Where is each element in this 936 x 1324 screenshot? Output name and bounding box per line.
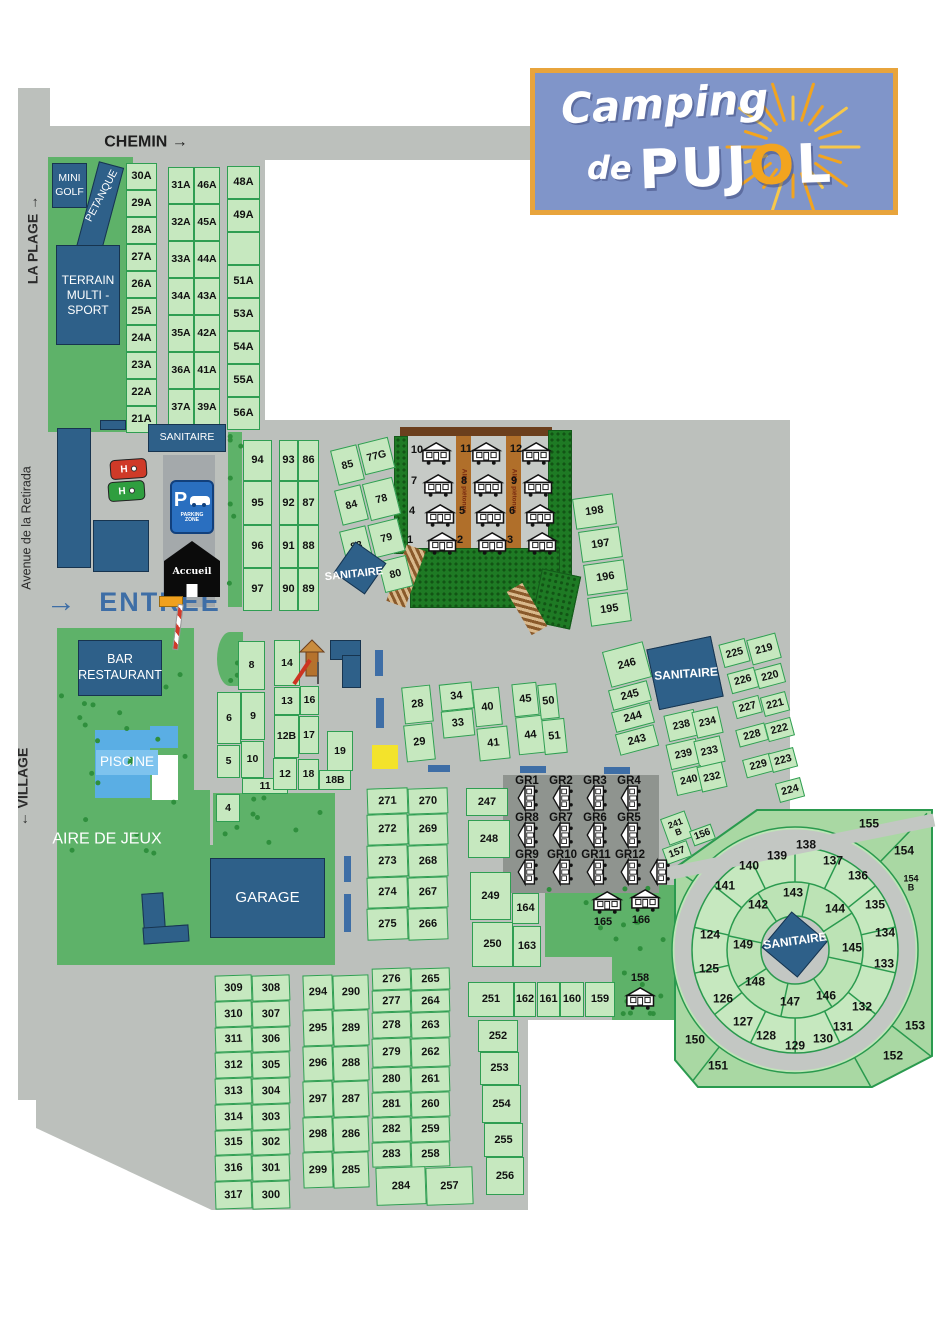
logo-prefix-word: de xyxy=(587,149,632,187)
plot-161: 161 xyxy=(537,982,560,1017)
map-label-144: 144 xyxy=(825,903,845,916)
map-label-138: 138 xyxy=(796,839,816,852)
plot-302: 302 xyxy=(252,1129,291,1155)
piscine-pool-2 xyxy=(150,726,178,748)
parking-sign: P PARKING ZONE xyxy=(170,480,214,534)
plot-10: 10 xyxy=(241,741,264,778)
map-label-gr3: GR3 xyxy=(583,775,607,787)
plot-163: 163 xyxy=(513,926,541,967)
aire-de-jeux-label: AIRE DE JEUX xyxy=(52,832,161,849)
car-icon xyxy=(190,496,210,505)
sanitaire-north-building: SANITAIRE xyxy=(148,424,226,452)
map-label-gr5: GR5 xyxy=(617,812,641,824)
map-label-3: 3 xyxy=(507,535,513,547)
map-label-152: 152 xyxy=(883,1050,903,1063)
map-label-130: 130 xyxy=(813,1033,833,1046)
plot-27A: 27A xyxy=(126,244,157,271)
accueil-house-icon: Accueil xyxy=(164,541,220,597)
road-label-la-plage: LA PLAGE → xyxy=(26,196,41,284)
plot-277: 277 xyxy=(372,989,412,1012)
map-label-1: 1 xyxy=(407,535,413,547)
plot-274: 274 xyxy=(366,876,408,908)
plot-285: 285 xyxy=(332,1151,369,1188)
map-label-133: 133 xyxy=(874,958,894,971)
plot-257: 257 xyxy=(425,1166,473,1206)
map-label-146: 146 xyxy=(816,990,836,1003)
plot-278: 278 xyxy=(372,1011,412,1038)
plot-14: 14 xyxy=(274,640,300,686)
map-label-137: 137 xyxy=(823,855,843,868)
plot-312: 312 xyxy=(215,1051,253,1078)
plot-51A: 51A xyxy=(227,265,260,298)
map-label-155: 155 xyxy=(859,818,879,831)
map-label-147: 147 xyxy=(780,996,800,1009)
building-west-3 xyxy=(100,420,126,430)
plot-28A: 28A xyxy=(126,217,157,244)
plot-250: 250 xyxy=(472,922,513,967)
plot-43A: 43A xyxy=(194,278,220,315)
terrain-multi-sport-building: TERRAIN MULTI - SPORT xyxy=(56,245,120,345)
map-label-149: 149 xyxy=(733,939,753,952)
map-label-134: 134 xyxy=(875,927,895,940)
plot-249: 249 xyxy=(470,872,511,920)
building-west-2 xyxy=(93,520,149,572)
map-label-gr10: GR10 xyxy=(547,849,577,861)
plot-287: 287 xyxy=(332,1080,369,1117)
map-label-11: 11 xyxy=(460,444,472,456)
plot-276: 276 xyxy=(372,967,412,990)
plot-41: 41 xyxy=(476,725,510,761)
plot-93: 93 xyxy=(279,440,298,481)
camping-logo: Camping de PUJOL xyxy=(530,68,898,215)
plot-6: 6 xyxy=(217,692,241,744)
road-dash xyxy=(344,894,351,932)
plot-88: 88 xyxy=(298,525,319,568)
plot-39A: 39A xyxy=(194,389,220,426)
road-dash xyxy=(428,765,450,772)
plot-95: 95 xyxy=(243,481,272,525)
plot-unlabeled xyxy=(227,232,260,265)
plot-26A: 26A xyxy=(126,271,157,298)
building-l-2 xyxy=(142,924,189,944)
map-label-gr6: GR6 xyxy=(583,812,607,824)
plot-268: 268 xyxy=(407,844,448,877)
map-label-gr12: GR12 xyxy=(615,849,645,861)
plot-37A: 37A xyxy=(168,389,194,426)
red-truck-icon: H xyxy=(109,458,147,481)
plot-310: 310 xyxy=(215,1000,253,1027)
plot-314: 314 xyxy=(215,1103,253,1130)
map-label-136: 136 xyxy=(848,870,868,883)
plot-309: 309 xyxy=(215,974,253,1001)
accueil-door xyxy=(187,584,198,597)
plot-308: 308 xyxy=(252,974,291,1001)
plot-264: 264 xyxy=(411,989,451,1012)
plot-87: 87 xyxy=(298,481,319,525)
plot-303: 303 xyxy=(252,1103,291,1130)
map-label-gr7: GR7 xyxy=(549,812,573,824)
plot-86: 86 xyxy=(298,440,319,481)
road-label-avenue-de-la-retirada: Avenue de la Retirada xyxy=(20,466,33,589)
plot-46A: 46A xyxy=(194,167,220,204)
plot-248: 248 xyxy=(468,820,510,858)
map-label-gr1: GR1 xyxy=(515,775,539,787)
plot-19: 19 xyxy=(327,731,353,771)
parking-zone-label: PARKING ZONE xyxy=(181,513,204,523)
plot-306: 306 xyxy=(252,1026,291,1052)
map-label-139: 139 xyxy=(767,850,787,863)
plot-160: 160 xyxy=(560,982,584,1017)
plot-263: 263 xyxy=(411,1011,451,1038)
plot-283: 283 xyxy=(372,1141,412,1167)
green-truck-icon: H xyxy=(107,480,145,503)
plot-195: 195 xyxy=(587,592,632,626)
map-label-2: 2 xyxy=(457,535,463,547)
plot-313: 313 xyxy=(215,1077,253,1104)
map-label-gr9: GR9 xyxy=(515,849,539,861)
gr-zone xyxy=(503,775,659,893)
plot-159: 159 xyxy=(585,982,615,1017)
plot-49A: 49A xyxy=(227,199,260,232)
parking-p-label: P xyxy=(174,491,187,509)
plot-53A: 53A xyxy=(227,298,260,331)
plot-288: 288 xyxy=(332,1045,369,1081)
map-label-153: 153 xyxy=(905,1020,925,1033)
plot-164: 164 xyxy=(512,893,539,924)
map-label-125: 125 xyxy=(699,963,719,976)
plot-18B: 18B xyxy=(319,770,351,790)
map-label-124: 124 xyxy=(700,929,720,942)
bar-restaurant-building: BAR RESTAURANT xyxy=(78,640,162,696)
road-dash xyxy=(376,698,384,728)
plot-299: 299 xyxy=(302,1151,333,1188)
plot-270: 270 xyxy=(408,787,449,814)
map-label-143: 143 xyxy=(783,887,803,900)
plot-5: 5 xyxy=(217,745,240,778)
plot-275: 275 xyxy=(366,907,408,940)
map-label-gr4: GR4 xyxy=(617,775,641,787)
map-label-10: 10 xyxy=(411,445,423,457)
plot-282: 282 xyxy=(372,1116,412,1142)
plot-9: 9 xyxy=(241,692,265,740)
map-label-158: 158 xyxy=(631,973,649,985)
map-label-140: 140 xyxy=(739,860,759,873)
road-dash xyxy=(375,650,383,676)
map-label-129: 129 xyxy=(785,1040,805,1053)
plot-286: 286 xyxy=(332,1116,369,1152)
plot-296: 296 xyxy=(302,1045,333,1081)
plot-279: 279 xyxy=(372,1037,412,1067)
plot-289: 289 xyxy=(332,1009,369,1046)
plot-33A: 33A xyxy=(168,241,194,278)
road-dash xyxy=(520,766,546,773)
plot-51: 51 xyxy=(541,718,568,755)
map-label-165: 165 xyxy=(594,917,612,929)
plot-42A: 42A xyxy=(194,315,220,352)
yellow-marker xyxy=(372,745,398,769)
hedge-bar xyxy=(400,427,552,436)
plot-56A: 56A xyxy=(227,397,260,430)
plot-45A: 45A xyxy=(194,204,220,241)
plot-35A: 35A xyxy=(168,315,194,352)
map-label-126: 126 xyxy=(713,993,733,1006)
plot-272: 272 xyxy=(366,813,408,845)
campground-map: Camping de PUJOL Accueil P PARKING ZONE … xyxy=(0,0,936,1324)
plot-34: 34 xyxy=(439,681,475,711)
truck-dot xyxy=(128,487,134,493)
plot-301: 301 xyxy=(252,1154,291,1181)
plot-55A: 55A xyxy=(227,364,260,397)
entree-arrow: → xyxy=(46,586,78,618)
plot-41A: 41A xyxy=(194,352,220,389)
accueil-label: Accueil xyxy=(172,566,211,577)
plot-45: 45 xyxy=(511,682,539,717)
plot-251: 251 xyxy=(468,982,514,1017)
mobile-home-court xyxy=(402,432,564,552)
plot-44A: 44A xyxy=(194,241,220,278)
map-label-6: 6 xyxy=(509,506,515,518)
map-label-8: 8 xyxy=(461,476,467,488)
plot-18: 18 xyxy=(298,759,319,790)
plot-297: 297 xyxy=(302,1080,333,1117)
plot-12: 12 xyxy=(273,758,297,790)
plot-31A: 31A xyxy=(168,167,194,204)
plot-271: 271 xyxy=(367,787,409,814)
plot-13: 13 xyxy=(274,687,300,715)
plot-295: 295 xyxy=(302,1009,333,1046)
map-label-154-b: 154 B xyxy=(903,875,918,894)
map-label-150: 150 xyxy=(685,1034,705,1047)
map-label-127: 127 xyxy=(733,1016,753,1029)
truck-letter: H xyxy=(118,486,126,497)
map-label-145: 145 xyxy=(842,942,862,955)
building-west-1 xyxy=(57,428,91,568)
plot-96: 96 xyxy=(243,525,272,568)
road-label-village: ← VILLAGE xyxy=(16,748,31,827)
map-label-148: 148 xyxy=(745,976,765,989)
map-label-12: 12 xyxy=(510,444,522,456)
truck-dot xyxy=(130,465,136,471)
plot-315: 315 xyxy=(215,1129,253,1155)
map-label-142: 142 xyxy=(748,899,768,912)
plot-254: 254 xyxy=(482,1085,521,1123)
plot-36A: 36A xyxy=(168,352,194,389)
accueil-body: Accueil xyxy=(164,561,220,597)
plot-50: 50 xyxy=(537,683,560,720)
map-label-128: 128 xyxy=(756,1030,776,1043)
plot-307: 307 xyxy=(252,1000,291,1027)
plot-255: 255 xyxy=(484,1123,523,1157)
piscine-label: PISCINE xyxy=(100,755,154,769)
plot-247: 247 xyxy=(466,788,508,816)
building-flag-2 xyxy=(342,655,361,688)
plot-29A: 29A xyxy=(126,190,157,217)
plot-284: 284 xyxy=(375,1166,426,1206)
plot-94: 94 xyxy=(243,440,272,481)
plot-260: 260 xyxy=(411,1091,451,1117)
plot-29: 29 xyxy=(403,723,436,763)
mini-golf-building: MINI GOLF xyxy=(52,163,87,208)
map-label-7: 7 xyxy=(411,476,417,488)
map-label-gr8: GR8 xyxy=(515,812,539,824)
map-label-gr11: GR11 xyxy=(581,849,610,861)
plot-4: 4 xyxy=(216,794,240,822)
map-label-151: 151 xyxy=(708,1060,728,1073)
plot-89: 89 xyxy=(298,568,319,611)
plot-198: 198 xyxy=(572,493,617,529)
plot-28: 28 xyxy=(401,685,434,725)
plot-316: 316 xyxy=(215,1154,253,1181)
plot-281: 281 xyxy=(372,1091,412,1117)
plot-262: 262 xyxy=(411,1037,451,1067)
plot-252: 252 xyxy=(478,1020,518,1052)
plot-32A: 32A xyxy=(168,204,194,241)
plot-162: 162 xyxy=(514,982,536,1017)
plot-33: 33 xyxy=(441,708,476,738)
plot-256: 256 xyxy=(486,1157,524,1195)
plot-16: 16 xyxy=(300,686,319,715)
plot-258: 258 xyxy=(411,1141,451,1167)
map-label-5: 5 xyxy=(459,506,465,518)
plot-305: 305 xyxy=(252,1051,291,1078)
plot-91: 91 xyxy=(279,525,298,568)
plot-196: 196 xyxy=(583,559,628,595)
garage-building: GARAGE xyxy=(210,858,325,938)
plot-40: 40 xyxy=(472,687,503,728)
map-label-154: 154 xyxy=(894,845,914,858)
plot-298: 298 xyxy=(302,1116,333,1152)
plot-90: 90 xyxy=(279,568,298,611)
plot-97: 97 xyxy=(243,568,272,611)
plot-12B: 12B xyxy=(274,715,299,758)
map-label-135: 135 xyxy=(865,899,885,912)
map-label-gr2: GR2 xyxy=(549,775,573,787)
map-label-9: 9 xyxy=(511,476,517,488)
plot-22A: 22A xyxy=(126,379,157,406)
plot-8: 8 xyxy=(238,641,265,690)
plot-304: 304 xyxy=(252,1077,291,1104)
plot-25A: 25A xyxy=(126,298,157,325)
plot-273: 273 xyxy=(366,844,408,877)
map-label-131: 131 xyxy=(833,1021,853,1034)
road-label-chemin: CHEMIN → xyxy=(104,135,188,152)
white-cutout xyxy=(528,1020,790,1212)
plot-34A: 34A xyxy=(168,278,194,315)
plot-280: 280 xyxy=(372,1066,412,1092)
accueil-roof xyxy=(164,541,220,561)
plot-266: 266 xyxy=(407,907,448,940)
plot-267: 267 xyxy=(407,876,448,908)
road-dash xyxy=(344,856,351,882)
plot-253: 253 xyxy=(480,1052,519,1085)
plot-48A: 48A xyxy=(227,166,260,199)
plot-290: 290 xyxy=(332,974,369,1010)
map-label-166: 166 xyxy=(632,915,650,927)
plot-23A: 23A xyxy=(126,352,157,379)
map-label-4: 4 xyxy=(409,506,415,518)
plot-265: 265 xyxy=(411,967,451,990)
map-label-141: 141 xyxy=(715,880,735,893)
plot-300: 300 xyxy=(252,1180,291,1209)
plot-259: 259 xyxy=(411,1116,451,1142)
road-dash xyxy=(604,767,630,774)
plot-17: 17 xyxy=(299,716,319,754)
green-strip xyxy=(228,432,242,607)
plot-54A: 54A xyxy=(227,331,260,364)
map-label-132: 132 xyxy=(852,1001,872,1014)
plot-261: 261 xyxy=(411,1066,451,1092)
plot-294: 294 xyxy=(302,974,333,1010)
truck-letter: H xyxy=(120,464,128,475)
plot-317: 317 xyxy=(215,1180,253,1209)
plot-197: 197 xyxy=(578,526,623,562)
plot-269: 269 xyxy=(407,813,448,845)
plot-311: 311 xyxy=(215,1026,253,1052)
logo-name-word: PUJOL xyxy=(638,132,834,202)
plot-30A: 30A xyxy=(126,163,157,190)
plot-92: 92 xyxy=(279,481,298,525)
plot-24A: 24A xyxy=(126,325,157,352)
